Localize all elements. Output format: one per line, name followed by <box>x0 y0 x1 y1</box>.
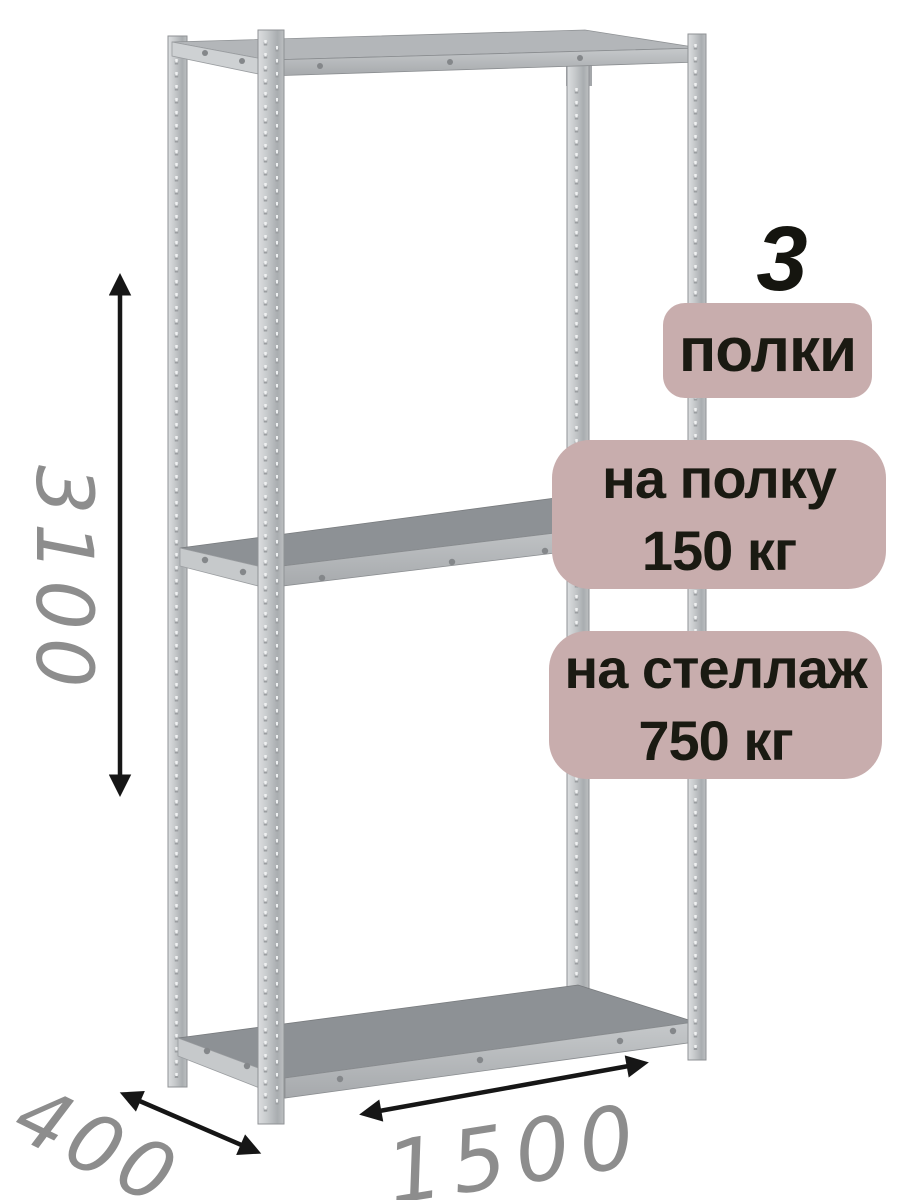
per-shelf-capacity-badge: на полку 150 кг <box>552 440 886 589</box>
rack-post-front-left <box>258 30 284 1124</box>
per-shelf-capacity-line1: на полку <box>602 443 836 515</box>
total-capacity-line1: на стеллаж <box>564 633 866 705</box>
shelf-count-label: полки <box>679 311 856 390</box>
per-shelf-capacity-line2: 150 кг <box>642 515 796 587</box>
rack-shelf-bottom <box>178 985 695 1098</box>
total-capacity-badge: на стеллаж 750 кг <box>549 631 882 779</box>
shelf-count-number: 3 <box>712 216 852 303</box>
shelf-count-badge: полки <box>663 303 872 398</box>
total-capacity-line2: 750 кг <box>638 705 792 777</box>
height-dimension-label: 3100 <box>22 465 102 675</box>
product-image: 3100 400 1500 3 полки на полку 150 кг на… <box>0 0 900 1200</box>
rack-shelf-top <box>172 30 700 76</box>
shelving-rack-illustration <box>0 0 900 1200</box>
